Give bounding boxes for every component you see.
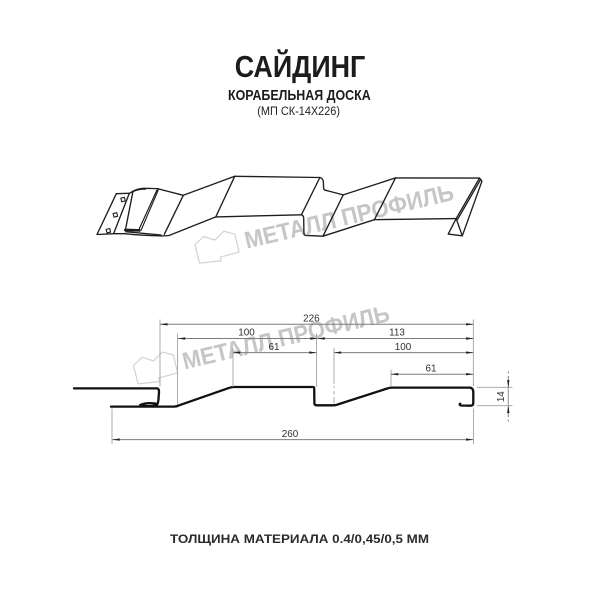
svg-text:113: 113 xyxy=(389,328,405,339)
svg-text:61: 61 xyxy=(269,342,280,353)
svg-text:ТОЛЩИНА МАТЕРИАЛА 0.4/0,45/0,5: ТОЛЩИНА МАТЕРИАЛА 0.4/0,45/0,5 ММ xyxy=(170,532,429,546)
svg-text:САЙДИНГ: САЙДИНГ xyxy=(235,48,366,84)
svg-text:226: 226 xyxy=(303,314,320,325)
svg-text:260: 260 xyxy=(282,429,299,440)
svg-text:КОРАБЕЛЬНАЯ ДОСКА: КОРАБЕЛЬНАЯ ДОСКА xyxy=(228,88,371,104)
svg-text:100: 100 xyxy=(395,342,412,353)
svg-text:100: 100 xyxy=(238,328,255,339)
svg-text:(МП СК-14Х226): (МП СК-14Х226) xyxy=(257,104,340,118)
svg-text:61: 61 xyxy=(426,364,437,375)
svg-text:14: 14 xyxy=(496,391,507,402)
